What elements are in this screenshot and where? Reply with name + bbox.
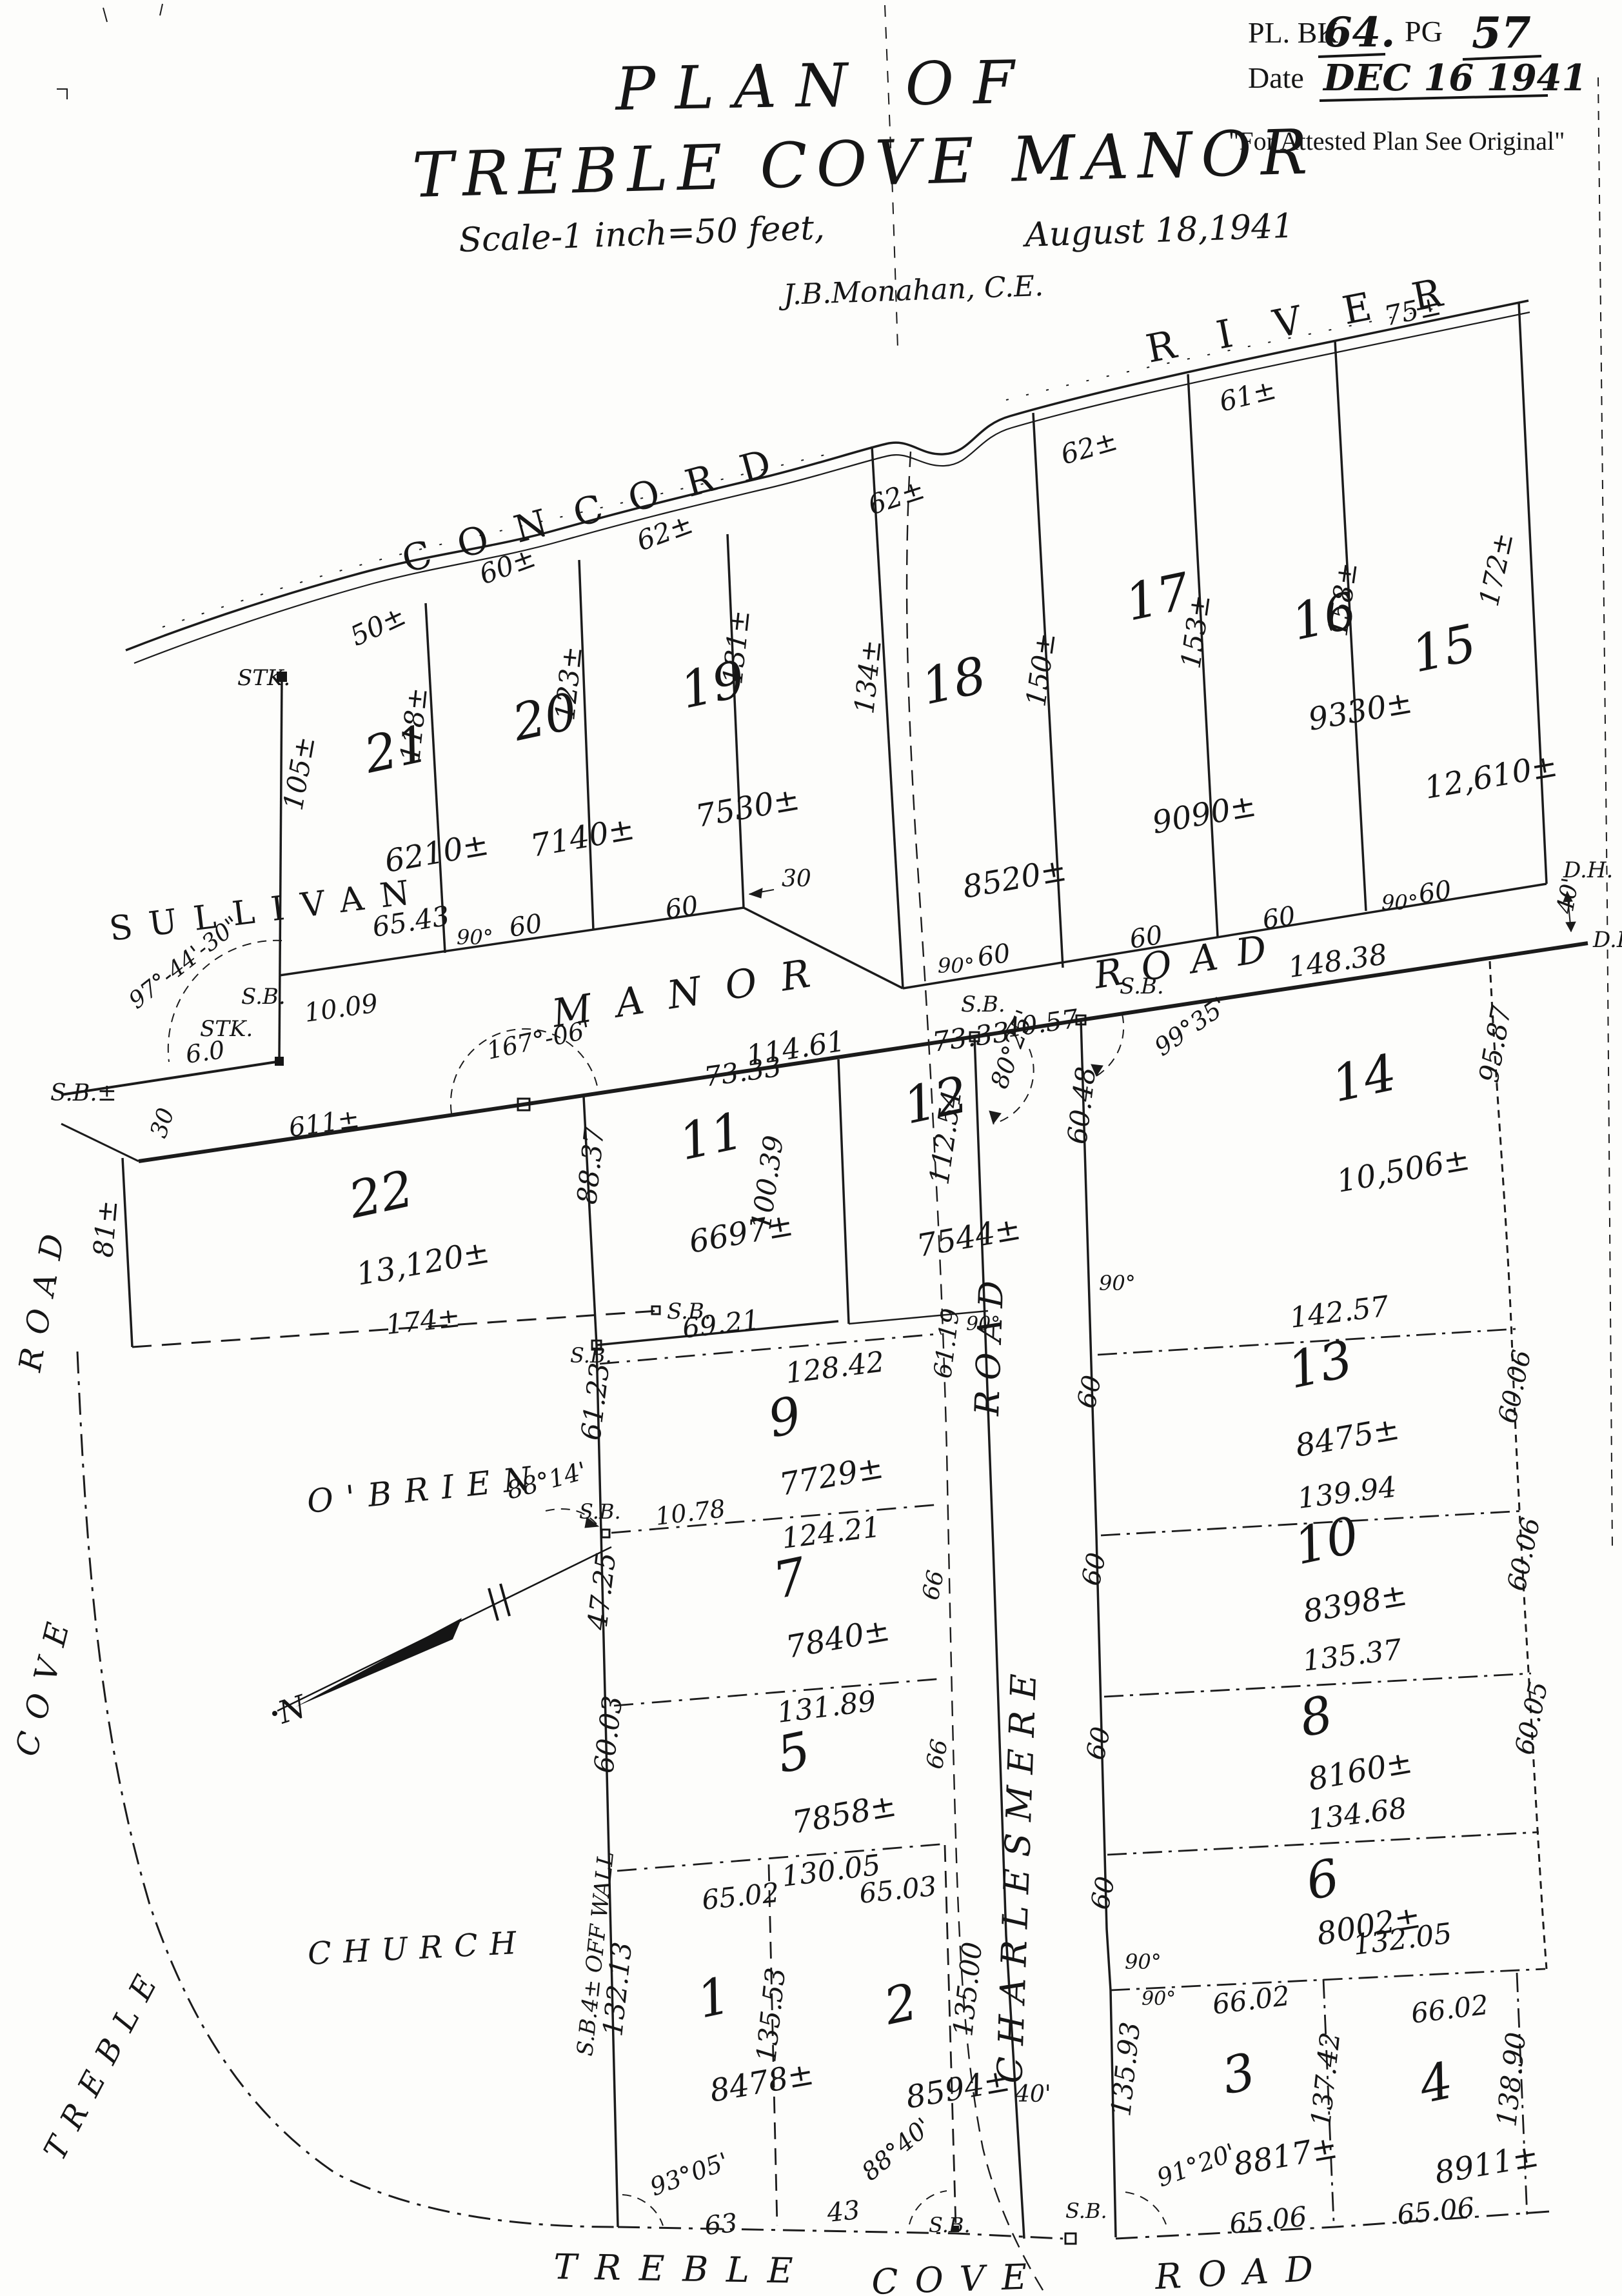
lot-number: 7 bbox=[768, 1547, 812, 1610]
dim-label: 40' bbox=[1014, 2081, 1051, 2108]
dim-label: S.B. bbox=[961, 992, 1005, 1017]
dim-label: 174± bbox=[384, 1301, 462, 1341]
plan-drawing: N PL. BK 64. PG 57 Date DEC 16 1941 "For… bbox=[0, 0, 1622, 2296]
dim-label: 60.05 bbox=[1510, 1679, 1554, 1758]
dim-label: 93°05' bbox=[646, 2147, 733, 2201]
dim-label: 60 bbox=[507, 908, 544, 943]
lot-number: 14 bbox=[1327, 1044, 1401, 1114]
dim-label: 91°20' bbox=[1153, 2138, 1240, 2192]
lot-number: 19 bbox=[675, 650, 750, 721]
lot-area: 8398± bbox=[1300, 1576, 1410, 1630]
lot-number: 2 bbox=[878, 1973, 922, 2037]
lot-area: 10,506± bbox=[1334, 1141, 1472, 1200]
generated-labels: CONCORDRIVERSULLIVANMANORROADCHARLESMERE… bbox=[8, 263, 1622, 2296]
dim-label: 63 bbox=[703, 2208, 738, 2241]
place-label: ROAD bbox=[1153, 2248, 1330, 2296]
plan-engineer: J.B.Monahan, C.E. bbox=[778, 270, 1044, 312]
lot-area: 8594± bbox=[903, 2062, 1013, 2115]
lot-area: 7544± bbox=[914, 1210, 1024, 1264]
lot-area: 7729± bbox=[776, 1449, 886, 1502]
plan-book-value: 64. bbox=[1323, 8, 1395, 57]
lot-number: 15 bbox=[1407, 614, 1481, 684]
dim-label: 135.00 bbox=[947, 1941, 988, 2038]
page-label: PG bbox=[1405, 15, 1443, 48]
dim-label: 62± bbox=[1057, 424, 1121, 471]
place-label: MANOR bbox=[548, 948, 837, 1037]
dim-label: 81± bbox=[87, 1199, 124, 1259]
lot-number: 6 bbox=[1301, 1848, 1344, 1912]
dim-label: 60.03 bbox=[588, 1694, 628, 1775]
dim-label: 105± bbox=[277, 734, 321, 813]
place-label: ROAD bbox=[968, 1270, 1012, 1417]
plan-date: August 18,1941 bbox=[1022, 206, 1294, 255]
dim-label: 60 bbox=[1076, 1550, 1113, 1588]
dim-label: 61± bbox=[1216, 374, 1280, 418]
dim-label: 88°40' bbox=[856, 2112, 937, 2186]
dim-label: 138.90 bbox=[1490, 2031, 1532, 2128]
lot-number: 9 bbox=[763, 1386, 806, 1449]
dim-label: 61.19 bbox=[928, 1307, 965, 1380]
dim-label: 60 bbox=[1085, 1874, 1122, 1912]
dim-label: D.H. bbox=[1592, 927, 1622, 953]
dim-label: 135.53 bbox=[750, 1966, 791, 2064]
place-label: ROAD bbox=[12, 1217, 74, 1375]
lot-area: 13,120± bbox=[353, 1234, 492, 1293]
dim-label: 10.78 bbox=[654, 1494, 727, 1531]
lot-area: 6697± bbox=[686, 1206, 796, 1260]
lot-area: 8817± bbox=[1231, 2129, 1340, 2182]
lot-number: 8 bbox=[1294, 1685, 1338, 1748]
lot-area: 7858± bbox=[789, 1787, 899, 1841]
dim-label: 128.42 bbox=[784, 1346, 886, 1390]
dim-label: 90° bbox=[1142, 1988, 1176, 2010]
north-arrow bbox=[272, 1547, 611, 1716]
dim-label: 60.48 bbox=[1061, 1065, 1102, 1146]
dim-label: 88.37 bbox=[571, 1125, 610, 1206]
lot-number: 5 bbox=[772, 1721, 815, 1784]
dim-label: S.B. bbox=[929, 2213, 971, 2237]
lot-number: 3 bbox=[1217, 2042, 1260, 2106]
place-label: TREBLE bbox=[553, 2246, 811, 2291]
lot-number: 18 bbox=[916, 646, 991, 717]
dim-label: 90° bbox=[1381, 890, 1418, 915]
dim-label: 150± bbox=[1020, 630, 1062, 708]
dim-label: 60 bbox=[1416, 875, 1453, 909]
dim-label: 43 bbox=[825, 2195, 861, 2228]
dim-label: 40' bbox=[1552, 876, 1584, 917]
place-label: COVE bbox=[871, 2256, 1044, 2296]
lot-area: 9330± bbox=[1305, 684, 1415, 737]
dim-label: 10.09 bbox=[302, 988, 380, 1028]
dim-label: 65.06 bbox=[1396, 2191, 1476, 2231]
dim-label: 90° bbox=[938, 953, 974, 978]
plan-title-line2: TREBLE COVE MANOR bbox=[411, 115, 1318, 212]
dim-label: 60 bbox=[1127, 920, 1164, 954]
dim-label: S.B. bbox=[1065, 2199, 1107, 2223]
lot-area: 7840± bbox=[783, 1612, 893, 1665]
dim-label: 61.23 bbox=[575, 1361, 615, 1442]
lot-area: 8478± bbox=[707, 2055, 816, 2109]
plan-title-line1: PLAN OF bbox=[614, 48, 1034, 124]
dim-label: 66.02 bbox=[1409, 1989, 1490, 2030]
dim-label: 60 bbox=[1072, 1373, 1108, 1411]
dim-label: 90° bbox=[1099, 1271, 1136, 1295]
dim-label: 60 bbox=[663, 890, 700, 924]
dim-label: 172± bbox=[1473, 530, 1519, 609]
dim-label: 30 bbox=[782, 866, 811, 892]
lot-number: 11 bbox=[674, 1102, 749, 1172]
dim-label: 73.33 bbox=[702, 1051, 784, 1093]
dim-label: STK. bbox=[237, 665, 290, 691]
dim-label: S.B. bbox=[241, 984, 286, 1010]
dim-label: 50± bbox=[346, 599, 411, 652]
dim-label: 90° bbox=[457, 925, 493, 950]
dim-label: 134± bbox=[848, 638, 887, 715]
dim-label: 167°-06' bbox=[484, 1015, 593, 1065]
dim-label: 30 bbox=[146, 1105, 180, 1141]
lot-area: 6210± bbox=[382, 826, 491, 879]
dim-label: 66 bbox=[922, 1737, 954, 1772]
lot-area: 8911± bbox=[1432, 2137, 1541, 2191]
dim-label: 134.68 bbox=[1306, 1792, 1409, 1837]
dim-label: 95.87 bbox=[1473, 1003, 1518, 1085]
place-label: CONCORD bbox=[397, 434, 803, 581]
dim-label: 137.42 bbox=[1305, 2031, 1346, 2128]
lot-area: 12,610± bbox=[1421, 748, 1560, 806]
plan-scale: Scale-1 inch=50 feet, bbox=[458, 208, 825, 260]
place-label: TREBLE bbox=[37, 1957, 171, 2166]
stone-wall-line bbox=[1490, 961, 1547, 1969]
lot-number: 21 bbox=[359, 715, 434, 785]
lot-number: 20 bbox=[507, 683, 582, 753]
page-value: 57 bbox=[1472, 8, 1531, 58]
dim-label: STK. bbox=[200, 1016, 253, 1042]
dim-label: 60 bbox=[1081, 1724, 1117, 1762]
dim-label: 66 bbox=[918, 1568, 950, 1602]
dim-label: 60.06 bbox=[1502, 1515, 1547, 1594]
lot-number: 4 bbox=[1414, 2051, 1458, 2115]
dim-label: 131.89 bbox=[775, 1685, 878, 1730]
lot-area: 8520± bbox=[960, 852, 1069, 905]
dim-label: 60 bbox=[1260, 901, 1297, 935]
title-block: PLAN OF TREBLE COVE MANOR Scale-1 inch=5… bbox=[411, 48, 1318, 312]
dim-label: 611± bbox=[287, 1104, 361, 1143]
lot-number: 13 bbox=[1283, 1330, 1358, 1401]
lot-area: 8160± bbox=[1305, 1744, 1415, 1797]
date-value: DEC 16 1941 bbox=[1322, 57, 1587, 99]
dim-label: 90° bbox=[1125, 1950, 1162, 1974]
dim-label: 90° bbox=[966, 1313, 1000, 1335]
dim-label: 47.25 bbox=[581, 1551, 622, 1632]
dim-label: 60 bbox=[975, 938, 1012, 972]
dim-label: S.B. bbox=[579, 1499, 621, 1524]
lot-number: 10 bbox=[1289, 1506, 1364, 1577]
survey-plan-sheet: N PL. BK 64. PG 57 Date DEC 16 1941 "For… bbox=[0, 0, 1622, 2296]
date-label: Date bbox=[1248, 61, 1304, 94]
lot-area: 9090± bbox=[1149, 787, 1259, 841]
dim-label: 135.37 bbox=[1301, 1633, 1403, 1678]
lot-number: 22 bbox=[343, 1160, 419, 1230]
dim-label: 60.06 bbox=[1493, 1348, 1538, 1426]
lot-number: 1 bbox=[692, 1966, 735, 2030]
place-label: CHARLESMERE bbox=[989, 1662, 1045, 2084]
dim-label: S.B. bbox=[1120, 973, 1164, 999]
dim-label: 65.06 bbox=[1228, 2201, 1309, 2240]
dim-label: 142.57 bbox=[1288, 1290, 1390, 1335]
dim-label: 66.02 bbox=[1211, 1980, 1291, 2021]
lot-area: 7140± bbox=[528, 810, 637, 864]
place-label: CHURCH bbox=[307, 1924, 529, 1972]
place-label: COVE bbox=[8, 1605, 80, 1760]
dim-label: 65.02 bbox=[700, 1877, 781, 1916]
dim-label: S.B.± bbox=[50, 1080, 117, 1106]
lot-area: 7530± bbox=[693, 781, 802, 834]
north-arrow-label: N bbox=[273, 1688, 312, 1732]
lot-area: 8475± bbox=[1292, 1410, 1402, 1464]
